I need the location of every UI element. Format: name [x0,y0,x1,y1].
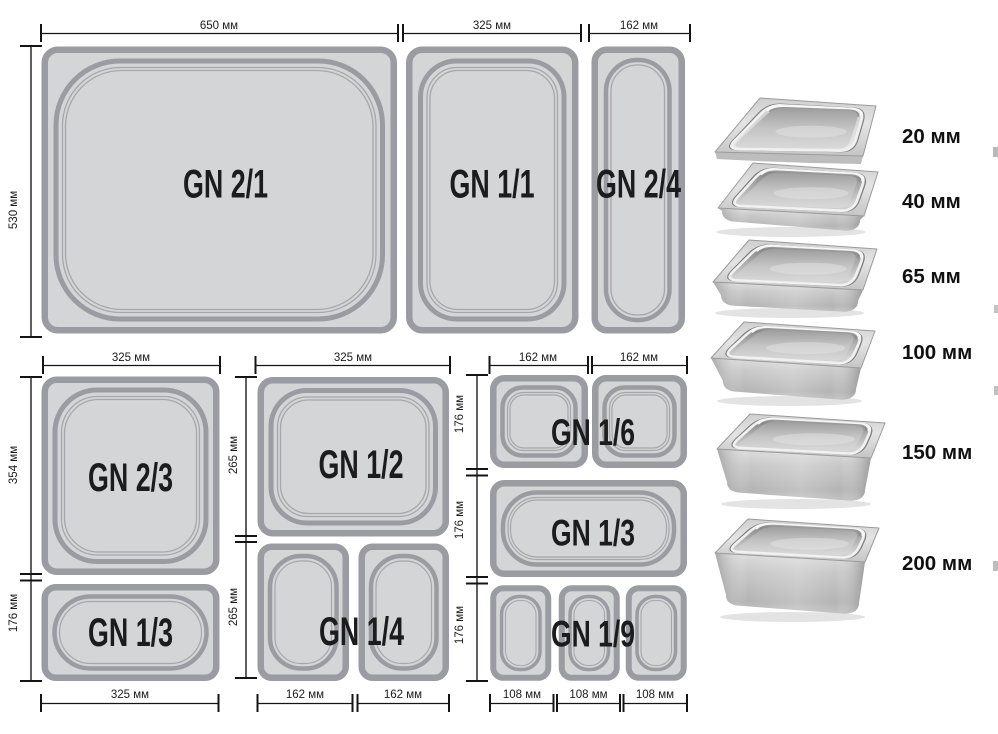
svg-text:176 мм: 176 мм [454,501,466,539]
svg-text:162 мм: 162 мм [620,20,658,32]
svg-text:265 мм: 265 мм [228,436,240,474]
svg-text:325 мм: 325 мм [111,689,149,701]
svg-text:354 мм: 354 мм [8,446,20,484]
svg-text:GN 2/4: GN 2/4 [596,163,682,207]
svg-text:GN 1/4: GN 1/4 [319,610,405,654]
svg-text:325 мм: 325 мм [112,352,150,364]
svg-text:162 мм: 162 мм [620,352,658,364]
svg-text:100 мм: 100 мм [902,341,972,364]
svg-text:GN 1/1: GN 1/1 [450,163,535,207]
svg-text:GN 1/3: GN 1/3 [88,611,173,655]
svg-text:162 мм: 162 мм [519,352,557,364]
svg-text:20 мм: 20 мм [902,125,961,148]
svg-text:176 мм: 176 мм [8,594,20,632]
svg-text:GN 2/1: GN 2/1 [183,163,268,207]
svg-text:GN 1/3: GN 1/3 [551,513,635,554]
svg-text:GN 2/3: GN 2/3 [88,456,173,500]
svg-text:65 мм: 65 мм [902,265,961,288]
svg-text:GN 1/2: GN 1/2 [319,443,404,487]
svg-text:162 мм: 162 мм [286,689,324,701]
svg-text:530 мм: 530 мм [8,191,20,229]
svg-text:40 мм: 40 мм [902,190,961,213]
svg-text:162 мм: 162 мм [384,689,422,701]
svg-text:176 мм: 176 мм [454,395,466,433]
svg-text:150 мм: 150 мм [902,441,972,464]
svg-text:325 мм: 325 мм [334,352,372,364]
svg-text:325 мм: 325 мм [473,20,511,32]
svg-text:GN 1/9: GN 1/9 [551,614,635,655]
svg-text:176 мм: 176 мм [454,606,466,644]
svg-text:GN 1/6: GN 1/6 [551,412,635,453]
svg-text:650 мм: 650 мм [200,20,238,32]
svg-text:200 мм: 200 мм [902,552,972,575]
svg-text:108 мм: 108 мм [569,689,607,701]
svg-text:108 мм: 108 мм [503,689,541,701]
svg-text:108 мм: 108 мм [636,689,674,701]
svg-text:265 мм: 265 мм [228,588,240,626]
